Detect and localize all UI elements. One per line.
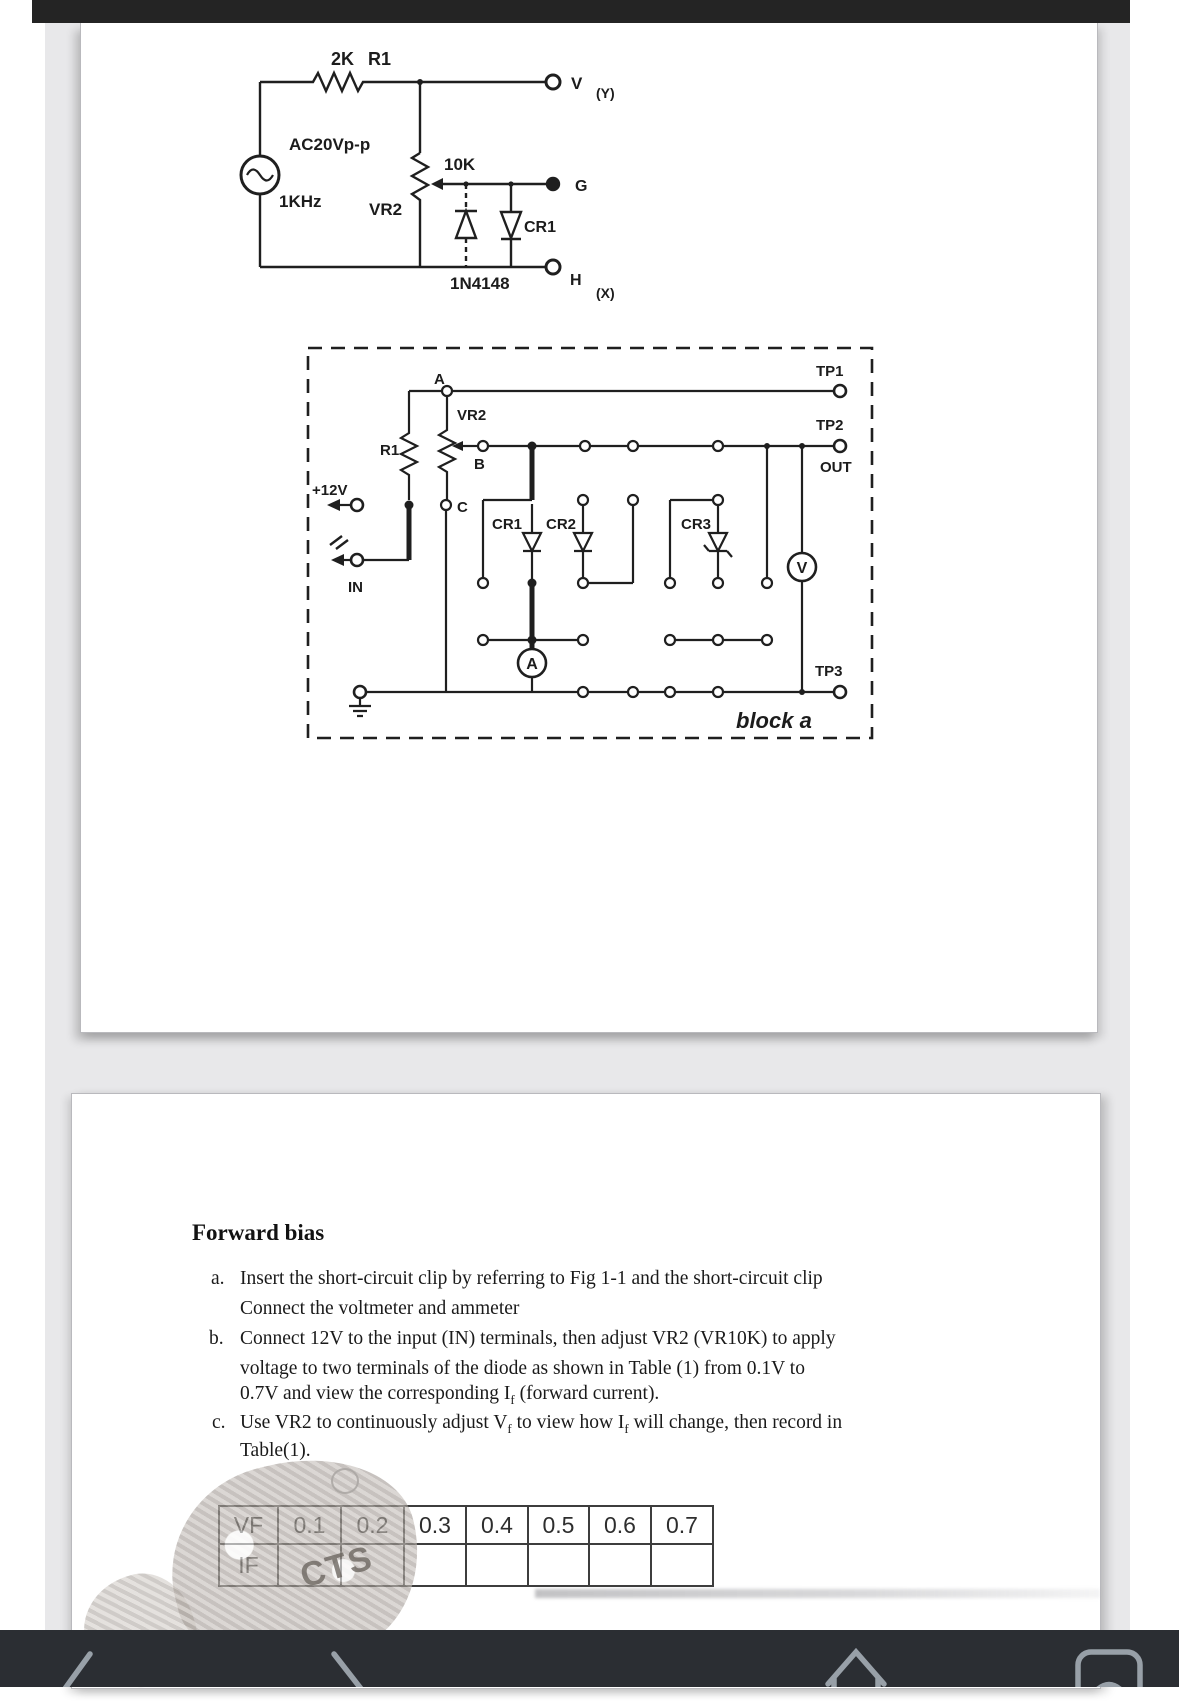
table-row-if: IF (219, 1544, 713, 1586)
list-marker-c: c. (212, 1412, 226, 1434)
table-cell: IF (219, 1544, 278, 1586)
table-cell (651, 1544, 713, 1586)
table-cell: VF (219, 1506, 278, 1544)
instruction-b-line1: Connect 12V to the input (IN) terminals,… (240, 1328, 836, 1350)
home-icon[interactable] (828, 1652, 884, 1687)
instruction-a-line2: Connect the voltmeter and ammeter (240, 1298, 519, 1320)
page2-text-layer: Forward bias a. Insert the short-circuit… (0, 0, 1179, 1687)
table-cell: 0.4 (466, 1506, 528, 1544)
screen: { "fig1": { "r1_value": "2K", "r1_name":… (0, 0, 1179, 1687)
forward-icon[interactable] (334, 1654, 362, 1687)
table-cell (278, 1544, 341, 1586)
instruction-b-line2: voltage to two terminals of the diode as… (240, 1358, 805, 1380)
table-cell (528, 1544, 589, 1586)
table-cell: 0.2 (341, 1506, 404, 1544)
table-cell (404, 1544, 466, 1586)
table-cell (589, 1544, 651, 1586)
instruction-b-line3-post: (forward current). (515, 1383, 660, 1404)
instruction-c-line1-mid: to view how I (512, 1412, 625, 1433)
instruction-c-line1-post: will change, then record in (629, 1412, 842, 1433)
recent-apps-icon[interactable] (1078, 1652, 1140, 1687)
instruction-b-line3: 0.7V and view the corresponding If (forw… (240, 1383, 659, 1408)
bottom-navigation-bar (0, 1630, 1179, 1687)
instruction-c-line1-pre: Use VR2 to continuously adjust V (240, 1412, 507, 1433)
list-marker-b: b. (209, 1328, 224, 1350)
table-cell: 0.3 (404, 1506, 466, 1544)
section-heading: Forward bias (192, 1220, 324, 1246)
table-cell: 0.5 (528, 1506, 589, 1544)
table-cell: 0.6 (589, 1506, 651, 1544)
instruction-c-line1: Use VR2 to continuously adjust Vf to vie… (240, 1412, 842, 1437)
table-row-vf: VF 0.1 0.2 0.3 0.4 0.5 0.6 0.7 (219, 1506, 713, 1544)
instruction-b-line3-pre: 0.7V and view the corresponding I (240, 1383, 510, 1404)
list-marker-a: a. (211, 1268, 225, 1290)
table-cell (341, 1544, 404, 1586)
table-cell: 0.7 (651, 1506, 713, 1544)
instruction-a-line1: Insert the short-circuit clip by referri… (240, 1268, 823, 1290)
instruction-c-line2: Table(1). (240, 1440, 311, 1462)
status-top-bar (32, 0, 1130, 23)
back-icon[interactable] (64, 1654, 90, 1687)
table-cell (466, 1544, 528, 1586)
nav-icons (0, 1630, 1179, 1687)
table-cell: 0.1 (278, 1506, 341, 1544)
vf-if-table: VF 0.1 0.2 0.3 0.4 0.5 0.6 0.7 IF (218, 1505, 714, 1587)
